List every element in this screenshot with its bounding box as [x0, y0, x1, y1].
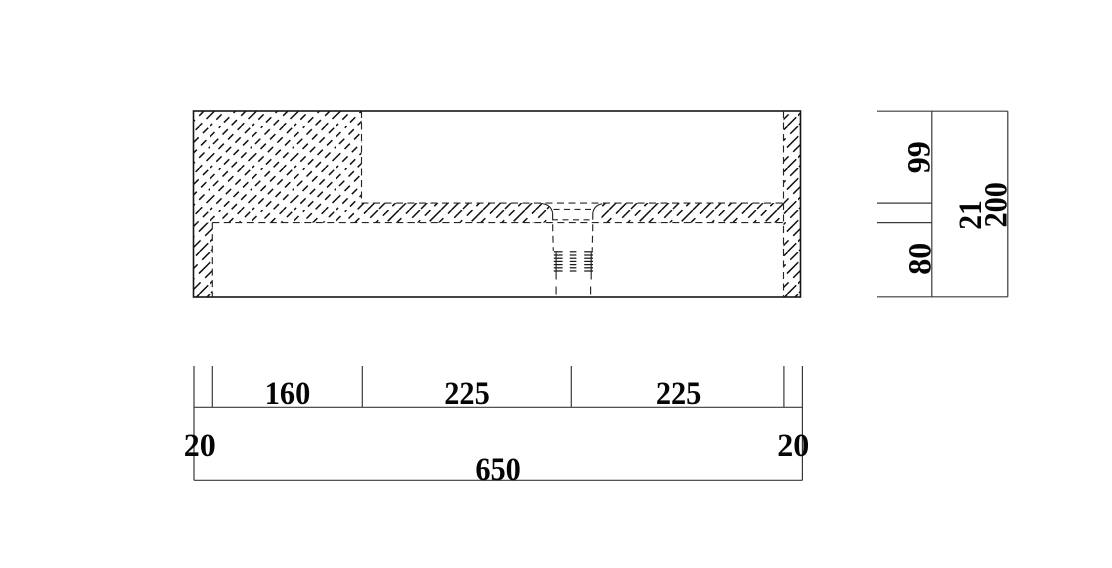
svg-text:225: 225 [656, 376, 702, 412]
svg-text:20: 20 [777, 428, 809, 464]
svg-text:160: 160 [265, 376, 311, 412]
svg-text:20: 20 [184, 428, 216, 464]
svg-text:650: 650 [475, 452, 521, 488]
svg-text:200: 200 [979, 182, 1015, 228]
svg-text:80: 80 [903, 243, 939, 275]
svg-text:225: 225 [444, 376, 490, 412]
svg-text:99: 99 [902, 141, 938, 173]
